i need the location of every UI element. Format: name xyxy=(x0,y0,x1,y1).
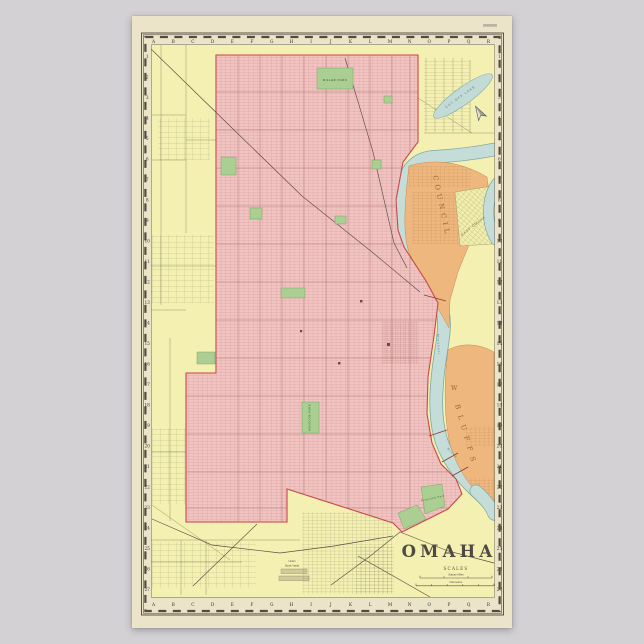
grid-letter: A xyxy=(151,40,156,45)
grid-number: 1 xyxy=(146,55,149,60)
grid-number: 19 xyxy=(497,424,503,429)
grid-letters-top: ABCDEFGHIJKLMNOPQR xyxy=(151,40,491,45)
grid-letter: R xyxy=(487,603,491,608)
grid-letter: J xyxy=(329,603,332,608)
grid-letter: I xyxy=(310,40,312,45)
grid-letter: P xyxy=(448,603,451,608)
park xyxy=(197,352,215,364)
park xyxy=(281,288,305,298)
grid-number: 25 xyxy=(497,547,503,552)
grid-letter: D xyxy=(211,603,215,608)
park xyxy=(250,208,262,219)
omaha-map: ABCDEFGHIJKLMNOPQR ABCDEFGHIJKLMNOPQR 12… xyxy=(132,16,512,628)
grid-letter: Q xyxy=(467,603,471,608)
grid-number: 27 xyxy=(497,588,503,593)
grid-number: 15 xyxy=(497,342,503,347)
grid-number: 10 xyxy=(497,240,503,245)
map-poster: ABCDEFGHIJKLMNOPQR ABCDEFGHIJKLMNOPQR 12… xyxy=(132,16,512,628)
grid-letters-bottom: ABCDEFGHIJKLMNOPQR xyxy=(151,603,491,608)
grid-number: 19 xyxy=(144,424,150,429)
grid-letter: R xyxy=(487,40,491,45)
council-bluffs-label-w: W xyxy=(451,385,458,392)
park xyxy=(384,96,392,103)
grid-number: 17 xyxy=(144,383,150,388)
grid-letter: C xyxy=(191,40,195,45)
grid-letter: L xyxy=(369,603,372,608)
grid-number: 15 xyxy=(144,342,150,347)
grid-number: 2 xyxy=(498,76,501,81)
grid-number: 6 xyxy=(498,158,501,163)
river-border-bend xyxy=(489,183,497,240)
grid-letter: P xyxy=(448,40,451,45)
grid-letter: H xyxy=(290,40,294,45)
grid-number: 22 xyxy=(144,486,150,491)
grid-letter: A xyxy=(151,603,156,608)
corner-imprint xyxy=(483,24,497,27)
grid-letter: E xyxy=(231,603,234,608)
grid-number: 8 xyxy=(146,199,149,204)
grid-letter: G xyxy=(270,603,274,608)
grid-letter: F xyxy=(251,40,254,45)
grid-letter: B xyxy=(172,603,175,608)
grid-number: 5 xyxy=(146,137,149,142)
grid-number: 13 xyxy=(144,301,150,306)
miller-park-label: MILLER PARK xyxy=(323,78,347,82)
grid-letter: H xyxy=(290,603,294,608)
grid-letter: L xyxy=(369,40,372,45)
grid-letter: N xyxy=(408,603,412,608)
grid-number: 10 xyxy=(144,240,150,245)
grid-number: 14 xyxy=(497,322,503,327)
scale-bar-label-km: Kilometres xyxy=(450,580,463,584)
grid-letter: O xyxy=(428,40,432,45)
grid-letter: I xyxy=(310,603,312,608)
grid-number: 1 xyxy=(498,55,501,60)
grid-number: 3 xyxy=(146,96,149,101)
grid-number: 7 xyxy=(498,178,501,183)
grid-letter: K xyxy=(349,603,353,608)
scales-heading: SCALES xyxy=(443,566,468,571)
grid-number: 20 xyxy=(144,445,150,450)
grid-number: 26 xyxy=(144,568,150,573)
grid-number: 4 xyxy=(498,117,501,122)
grid-number: 8 xyxy=(498,199,501,204)
grid-letter: E xyxy=(231,40,234,45)
grid-letter: M xyxy=(388,603,393,608)
grid-number: 26 xyxy=(497,568,503,573)
grid-letter: D xyxy=(211,40,215,45)
grid-number: 7 xyxy=(146,178,149,183)
grid-number: 21 xyxy=(144,465,150,470)
grid-letter: J xyxy=(329,40,332,45)
grid-number: 24 xyxy=(497,527,503,532)
grid-number: 11 xyxy=(497,260,503,265)
grid-letter: N xyxy=(408,40,412,45)
grid-letter: F xyxy=(251,603,254,608)
grid-number: 25 xyxy=(144,547,150,552)
backdrop: { "poster": { "map_title": "OMAHA", "sca… xyxy=(0,0,644,644)
grid-number: 24 xyxy=(144,527,150,532)
grid-number: 16 xyxy=(144,363,150,368)
grid-number: 2 xyxy=(146,76,149,81)
grid-number: 23 xyxy=(144,506,150,511)
grid-number: 12 xyxy=(144,281,150,286)
grid-number: 17 xyxy=(497,383,503,388)
grid-number: 6 xyxy=(146,158,149,163)
grid-number: 12 xyxy=(497,281,503,286)
grid-number: 20 xyxy=(497,445,503,450)
grid-letter: B xyxy=(172,40,175,45)
park xyxy=(372,160,381,169)
grid-number: 27 xyxy=(144,588,150,593)
hanscom-park-label: HANSCOM PARK xyxy=(308,404,312,431)
grid-number: 4 xyxy=(146,117,149,122)
grid-number: 22 xyxy=(497,486,503,491)
grid-number: 13 xyxy=(497,301,503,306)
park xyxy=(221,157,236,175)
grid-letter: M xyxy=(388,40,393,45)
grid-letter: Q xyxy=(467,40,471,45)
grid-number: 18 xyxy=(144,404,150,409)
stockyards-label-1: Union xyxy=(288,559,296,563)
grid-letter: K xyxy=(349,40,353,45)
grid-number: 21 xyxy=(497,465,503,470)
grid-number: 16 xyxy=(497,363,503,368)
scale-bar-label-miles: Statute Miles xyxy=(448,572,464,576)
grid-letter: G xyxy=(270,40,274,45)
grid-number: 9 xyxy=(146,219,149,224)
grid-number: 18 xyxy=(497,404,503,409)
grid-number: 3 xyxy=(498,96,501,101)
grid-letter: C xyxy=(191,603,195,608)
map-title: OMAHA xyxy=(402,542,497,561)
grid-letter: O xyxy=(428,603,432,608)
grid-number: 23 xyxy=(497,506,503,511)
stockyards-label-2: Stock Yards xyxy=(285,564,300,568)
grid-number: 5 xyxy=(498,137,501,142)
grid-number: 9 xyxy=(498,219,501,224)
park xyxy=(335,216,346,224)
grid-number: 11 xyxy=(144,260,150,265)
grid-number: 14 xyxy=(144,322,150,327)
